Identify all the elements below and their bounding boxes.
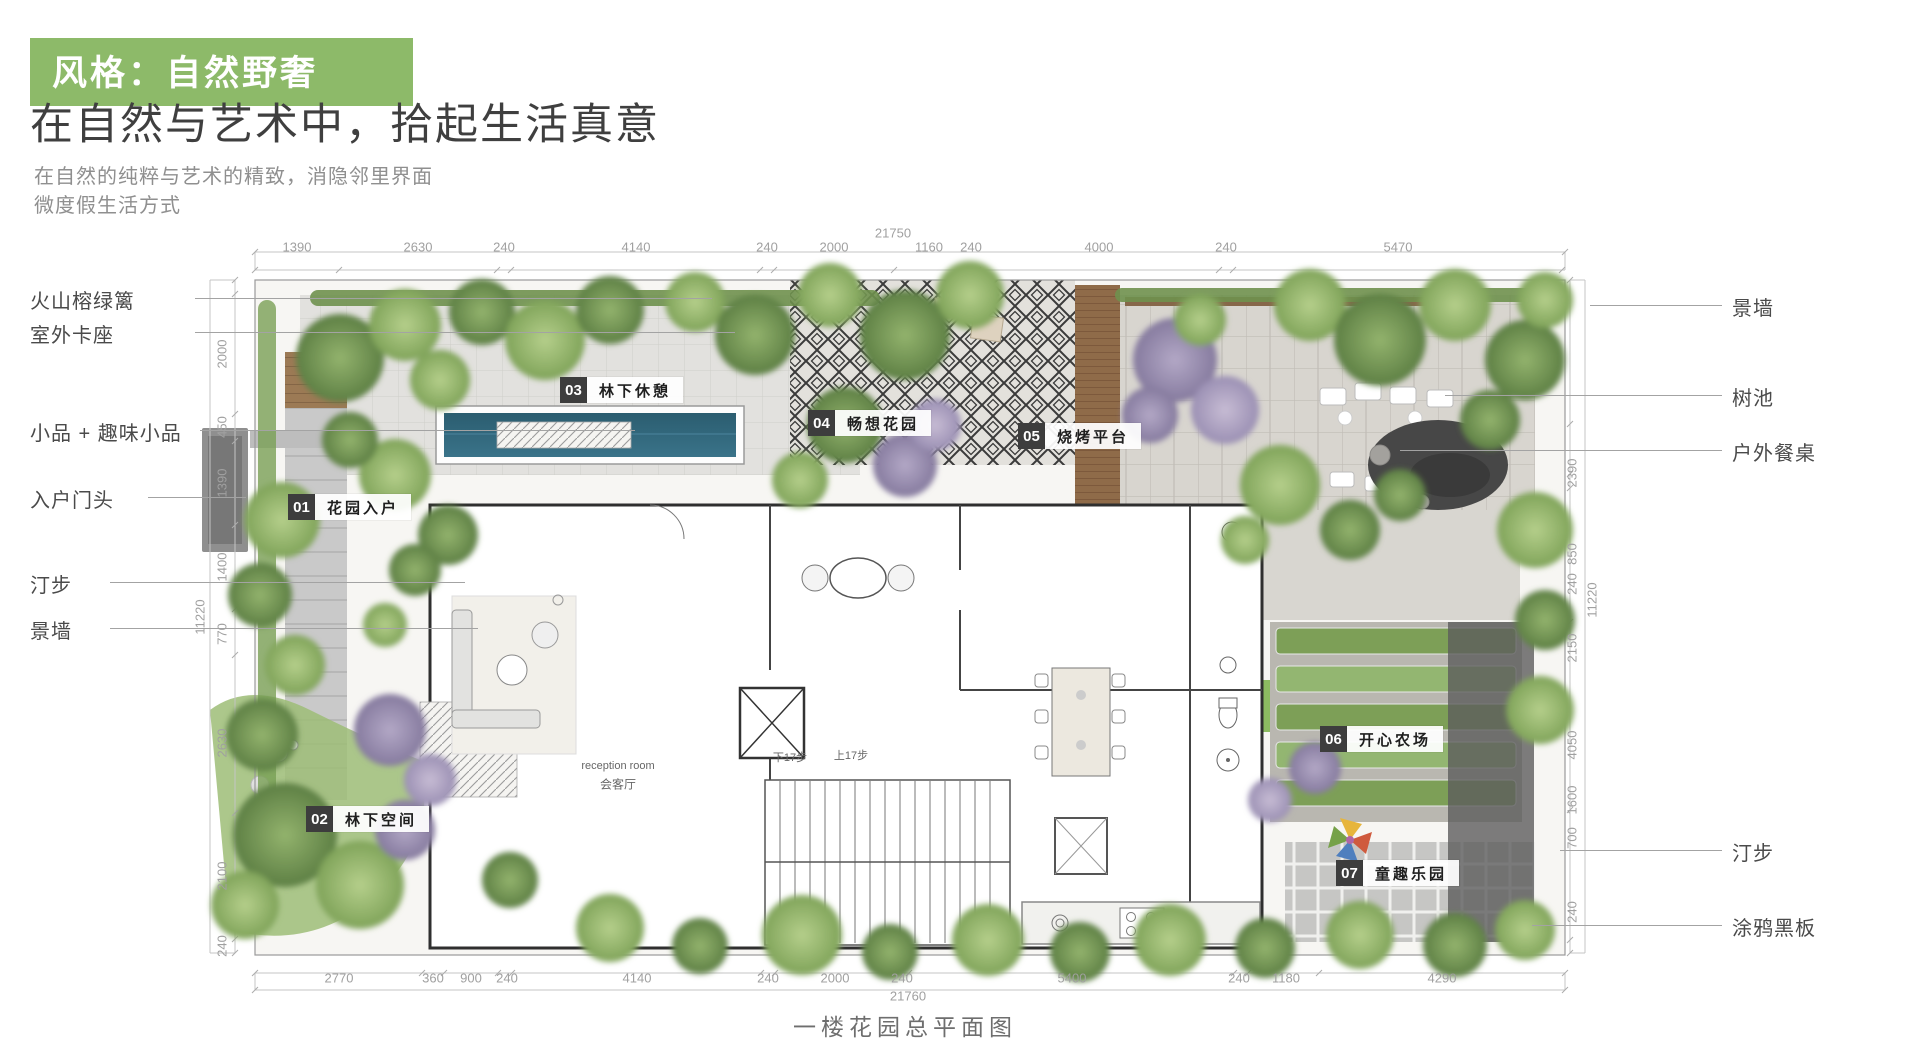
wood-deck-strip (1075, 285, 1120, 515)
dim-left: 2630 (215, 729, 230, 758)
stairs-up-label: 上17步 (834, 747, 868, 763)
garden-plan-rendering (190, 240, 1610, 1010)
zone-number: 03 (560, 377, 587, 403)
leader-line (110, 628, 478, 629)
dim-right: 2390 (1565, 459, 1580, 488)
dim-left: 2100 (215, 862, 230, 891)
zone-badge-under-forest-space: 02 林下空间 (306, 806, 429, 832)
dim-left-total: 11220 (193, 599, 208, 634)
dim-bottom: 360 (422, 971, 444, 986)
dim-top: 1160 (915, 240, 943, 255)
leader-line (200, 430, 635, 431)
plan-caption: 一楼花园总平面图 (793, 1008, 1017, 1042)
leader-line (1400, 450, 1722, 451)
leader-line (1590, 305, 1722, 306)
zone-badge-happy-farm: 06 开心农场 (1320, 726, 1443, 752)
dim-top: 240 (493, 240, 515, 255)
dim-bottom: 240 (496, 971, 518, 986)
dim-bottom: 1180 (1272, 971, 1300, 986)
zone-number: 04 (808, 410, 835, 436)
leader-line (1560, 850, 1722, 851)
zone-name: 烧烤平台 (1045, 423, 1141, 449)
callout-volcanic-ficus-hedge: 火山榕绿篱 (30, 285, 135, 314)
callout-feature-wall-right: 景墙 (1732, 292, 1774, 321)
leader-line (110, 582, 465, 583)
dim-top: 240 (1215, 240, 1237, 255)
leader-line (195, 332, 735, 333)
callout-entry-gate: 入户门头 (30, 484, 114, 513)
subtitle-line-2: 微度假生活方式 (34, 189, 181, 218)
dim-top: 2630 (404, 240, 433, 255)
zone-badge-bbq-platform: 05 烧烤平台 (1018, 423, 1141, 449)
dim-right: 1600 (1565, 786, 1580, 815)
dim-bottom: 4290 (1428, 971, 1457, 986)
dim-right: 850 (1565, 543, 1580, 565)
dim-top: 4000 (1085, 240, 1114, 255)
page-title: 在自然与艺术中，拾起生活真意 (30, 90, 660, 152)
leader-line (148, 497, 246, 498)
dim-right: 700 (1565, 827, 1580, 849)
dim-top-total: 21750 (875, 226, 911, 241)
zone-name: 林下休憩 (587, 377, 683, 403)
dim-right-total: 11220 (1585, 582, 1600, 617)
dim-top: 5470 (1384, 240, 1413, 255)
zone-number: 07 (1336, 860, 1363, 886)
callout-outdoor-dining-table: 户外餐桌 (1732, 437, 1816, 466)
zone-name: 林下空间 (333, 806, 429, 832)
dim-top: 240 (756, 240, 778, 255)
dark-gravel-path (1448, 622, 1534, 942)
reception-room-label-en: reception room (581, 760, 654, 772)
dim-right: 240 (1565, 573, 1580, 595)
zone-number: 01 (288, 494, 315, 520)
leader-line (1445, 395, 1722, 396)
dim-left: 770 (215, 623, 230, 645)
dim-right: 4050 (1565, 731, 1580, 760)
dim-bottom: 4140 (623, 971, 652, 986)
reception-room-label-cn: 会客厅 (600, 776, 636, 793)
zone-name: 畅想花园 (835, 410, 931, 436)
callout-outdoor-booth: 室外卡座 (30, 319, 114, 348)
leader-line (1532, 925, 1722, 926)
zone-badge-imagination-garden: 04 畅想花园 (808, 410, 931, 436)
callout-garden-ornaments: 小品 + 趣味小品 (30, 417, 182, 446)
zone-number: 06 (1320, 726, 1347, 752)
zone-number: 02 (306, 806, 333, 832)
zone-badge-under-forest-rest: 03 林下休憩 (560, 377, 683, 403)
dim-left: 2000 (215, 340, 230, 369)
dim-bottom: 240 (891, 971, 913, 986)
subtitle-line-1: 在自然的纯粹与艺术的精致，消隐邻里界面 (34, 160, 433, 189)
dim-top: 2000 (820, 240, 849, 255)
dim-bottom: 5400 (1058, 971, 1087, 986)
dim-top: 240 (960, 240, 982, 255)
dim-bottom: 2770 (325, 971, 354, 986)
dim-top: 4140 (622, 240, 651, 255)
dim-bottom: 240 (1228, 971, 1250, 986)
dim-left: 450 (215, 416, 230, 438)
dim-bottom-total: 21760 (890, 989, 926, 1004)
dim-left: 1400 (215, 553, 230, 582)
zone-name: 花园入户 (315, 494, 411, 520)
callout-feature-wall-left: 景墙 (30, 615, 72, 644)
dim-top: 1390 (283, 240, 312, 255)
zone-badge-kids-playground: 07 童趣乐园 (1336, 860, 1459, 886)
callout-stepping-stones-left: 汀步 (30, 569, 72, 598)
stairs-down-label: 下17步 (773, 749, 807, 765)
leader-line (195, 298, 712, 299)
slide-page: 风格：自然野奢 在自然与艺术中，拾起生活真意 在自然的纯粹与艺术的精致，消隐邻里… (0, 0, 1909, 1050)
dim-left: 1390 (215, 469, 230, 498)
dim-left: 240 (215, 935, 230, 957)
zone-name: 开心农场 (1347, 726, 1443, 752)
callout-stepping-stones-right: 汀步 (1732, 837, 1774, 866)
zone-number: 05 (1018, 423, 1045, 449)
dim-bottom: 240 (757, 971, 779, 986)
dim-bottom: 2000 (821, 971, 850, 986)
callout-graffiti-blackboard: 涂鸦黑板 (1732, 912, 1816, 941)
dim-right: 2150 (1565, 634, 1580, 663)
zone-badge-garden-entry: 01 花园入户 (288, 494, 411, 520)
callout-tree-pool: 树池 (1732, 382, 1774, 411)
dim-right: 240 (1565, 901, 1580, 923)
zone-name: 童趣乐园 (1363, 860, 1459, 886)
dim-bottom: 900 (460, 971, 482, 986)
